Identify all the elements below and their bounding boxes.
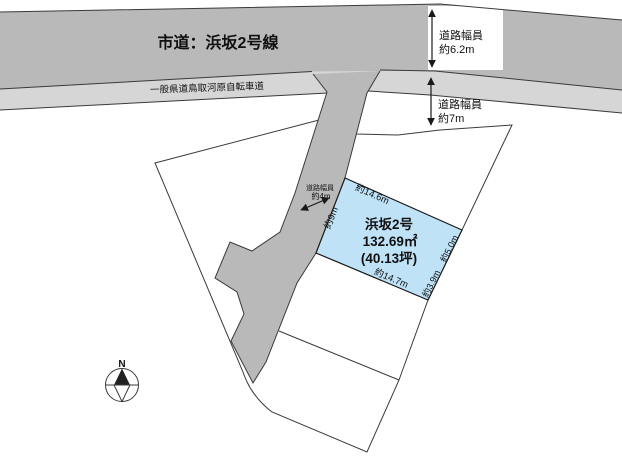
road-width-side-value: 約4m	[311, 191, 330, 201]
parcel-name: 浜坂2号	[365, 216, 413, 232]
plot-map: 市道：浜坂2号線 一般県道鳥取河原自転車道 道路幅員 約6.2m 道路幅員 約7…	[0, 0, 622, 466]
main-road-label: 市道：浜坂2号線	[158, 33, 279, 52]
parcel-area-m2: 132.69㎡	[363, 233, 418, 249]
road-width-mid-label: 道路幅員	[438, 97, 482, 111]
road-width-top-label: 道路幅員	[439, 28, 483, 42]
road-width-side-label: 道路幅員	[306, 183, 334, 192]
road-width-top-value: 約6.2m	[439, 42, 474, 56]
site-plan-svg: 市道：浜坂2号線 一般県道鳥取河原自転車道 道路幅員 約6.2m 道路幅員 約7…	[0, 0, 622, 466]
road-width-mid-value: 約7m	[438, 111, 464, 125]
parcel-area-tsubo: (40.13坪)	[361, 251, 417, 266]
